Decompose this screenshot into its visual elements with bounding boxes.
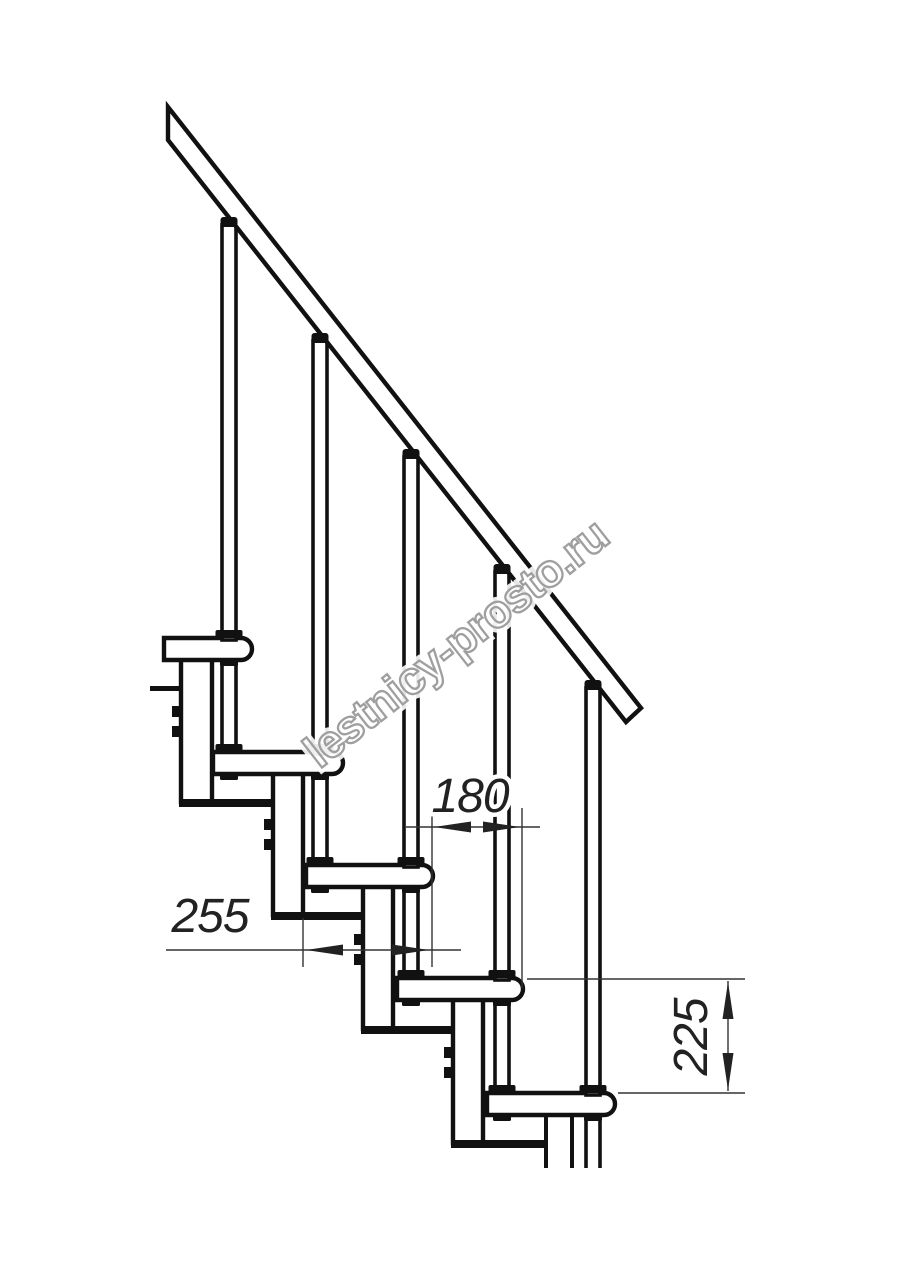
baluster-5 <box>586 688 600 1095</box>
bracket-plate-stub <box>150 686 183 691</box>
rod-2 <box>313 772 327 867</box>
tread-nut-icon <box>584 1114 602 1121</box>
tread-nut-icon <box>220 773 238 780</box>
arrow-left-icon <box>306 945 343 956</box>
tread-1 <box>164 638 252 660</box>
baluster-2 <box>313 341 327 754</box>
technical-drawing-canvas: 255 180 225 lestnicy-prosto.ru lestnicy-… <box>0 0 914 1280</box>
tread-nut-icon <box>402 886 420 893</box>
support-column-4 <box>453 998 483 1143</box>
tread-nut-icon <box>402 999 420 1006</box>
rod-5-fill <box>587 1113 599 1168</box>
arrow-left-icon <box>434 822 471 833</box>
support-column-1 <box>181 658 212 802</box>
support-column-5-fill <box>547 1113 571 1168</box>
bracket-plate-1 <box>179 799 276 807</box>
tread-nut-icon <box>493 1114 511 1121</box>
tread-flange-icon <box>580 1085 607 1093</box>
rail-connector-icon <box>585 680 602 690</box>
dimension-225: 225 <box>527 979 745 1093</box>
support-column-3 <box>363 885 393 1029</box>
bolt-clip-icon <box>354 934 365 945</box>
bolt-clip-icon <box>444 1047 455 1058</box>
tread-nut-icon <box>493 999 511 1006</box>
tread-flange-icon <box>398 857 425 865</box>
dimension-label-180: 180 <box>431 770 509 823</box>
bracket-plate-3 <box>361 1026 456 1034</box>
tread-flange-icon <box>489 970 516 978</box>
bolt-clip-icon <box>264 819 275 830</box>
rod-1 <box>222 658 236 754</box>
baluster-1 <box>222 225 236 640</box>
rod-3 <box>404 885 418 980</box>
support-column-2 <box>273 772 303 915</box>
bracket-plate-2 <box>271 912 366 920</box>
dimension-label-255: 255 <box>170 890 249 943</box>
rod-4 <box>495 998 509 1095</box>
tread-flange-icon <box>216 744 243 752</box>
rail-connector-icon <box>221 217 238 227</box>
tread-flange-icon <box>307 857 334 865</box>
bolt-clip-icon <box>444 1067 455 1078</box>
tread-nut-icon <box>220 659 238 666</box>
rail-connector-icon <box>312 333 329 343</box>
bolt-clip-icon <box>264 839 275 850</box>
tread-flange-icon <box>216 630 243 638</box>
arrow-down-icon <box>723 1053 734 1090</box>
bolt-clip-icon <box>172 706 183 717</box>
tread-flange-icon <box>398 970 425 978</box>
dimension-label-225: 225 <box>665 997 718 1076</box>
bolt-clip-icon <box>354 954 365 965</box>
bolt-clip-icon <box>172 726 183 737</box>
rail-connector-icon <box>403 449 420 459</box>
tread-nut-icon <box>311 886 329 893</box>
arrow-up-icon <box>723 982 734 1019</box>
bracket-plate-4 <box>451 1140 547 1148</box>
staircase-drawing: 255 180 225 lestnicy-prosto.ru lestnicy-… <box>0 0 914 1280</box>
tread-flange-icon <box>489 1085 516 1093</box>
